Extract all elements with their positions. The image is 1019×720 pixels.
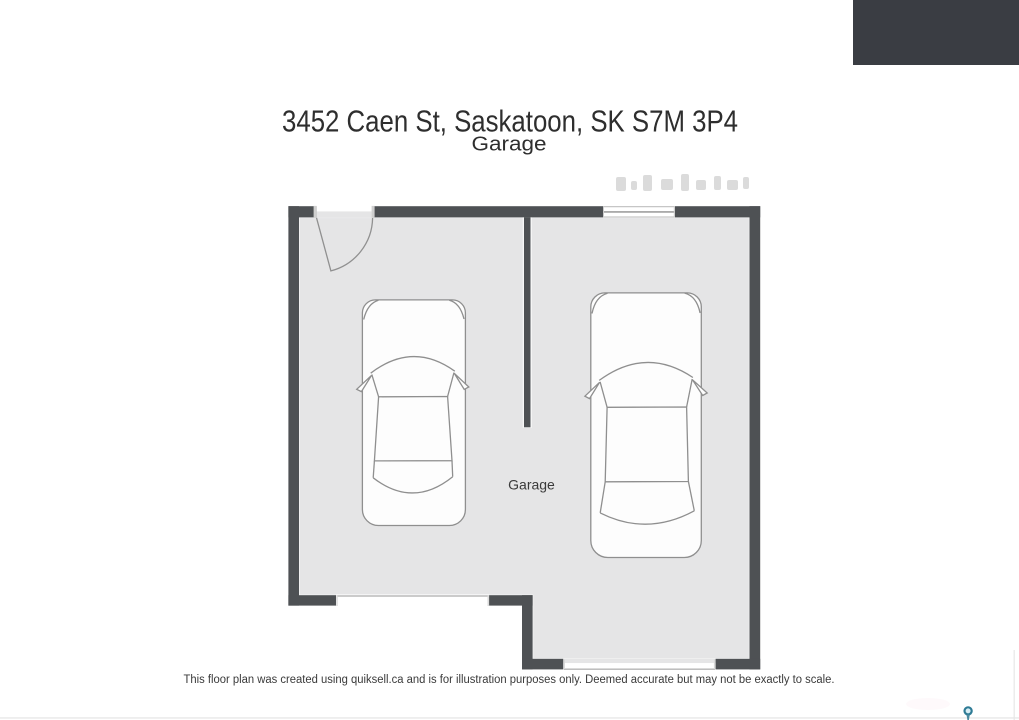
svg-text:Garage: Garage <box>508 477 555 493</box>
svg-text:Garage: Garage <box>472 134 547 156</box>
svg-text:This floor plan was created us: This floor plan was created using quikse… <box>184 674 835 686</box>
